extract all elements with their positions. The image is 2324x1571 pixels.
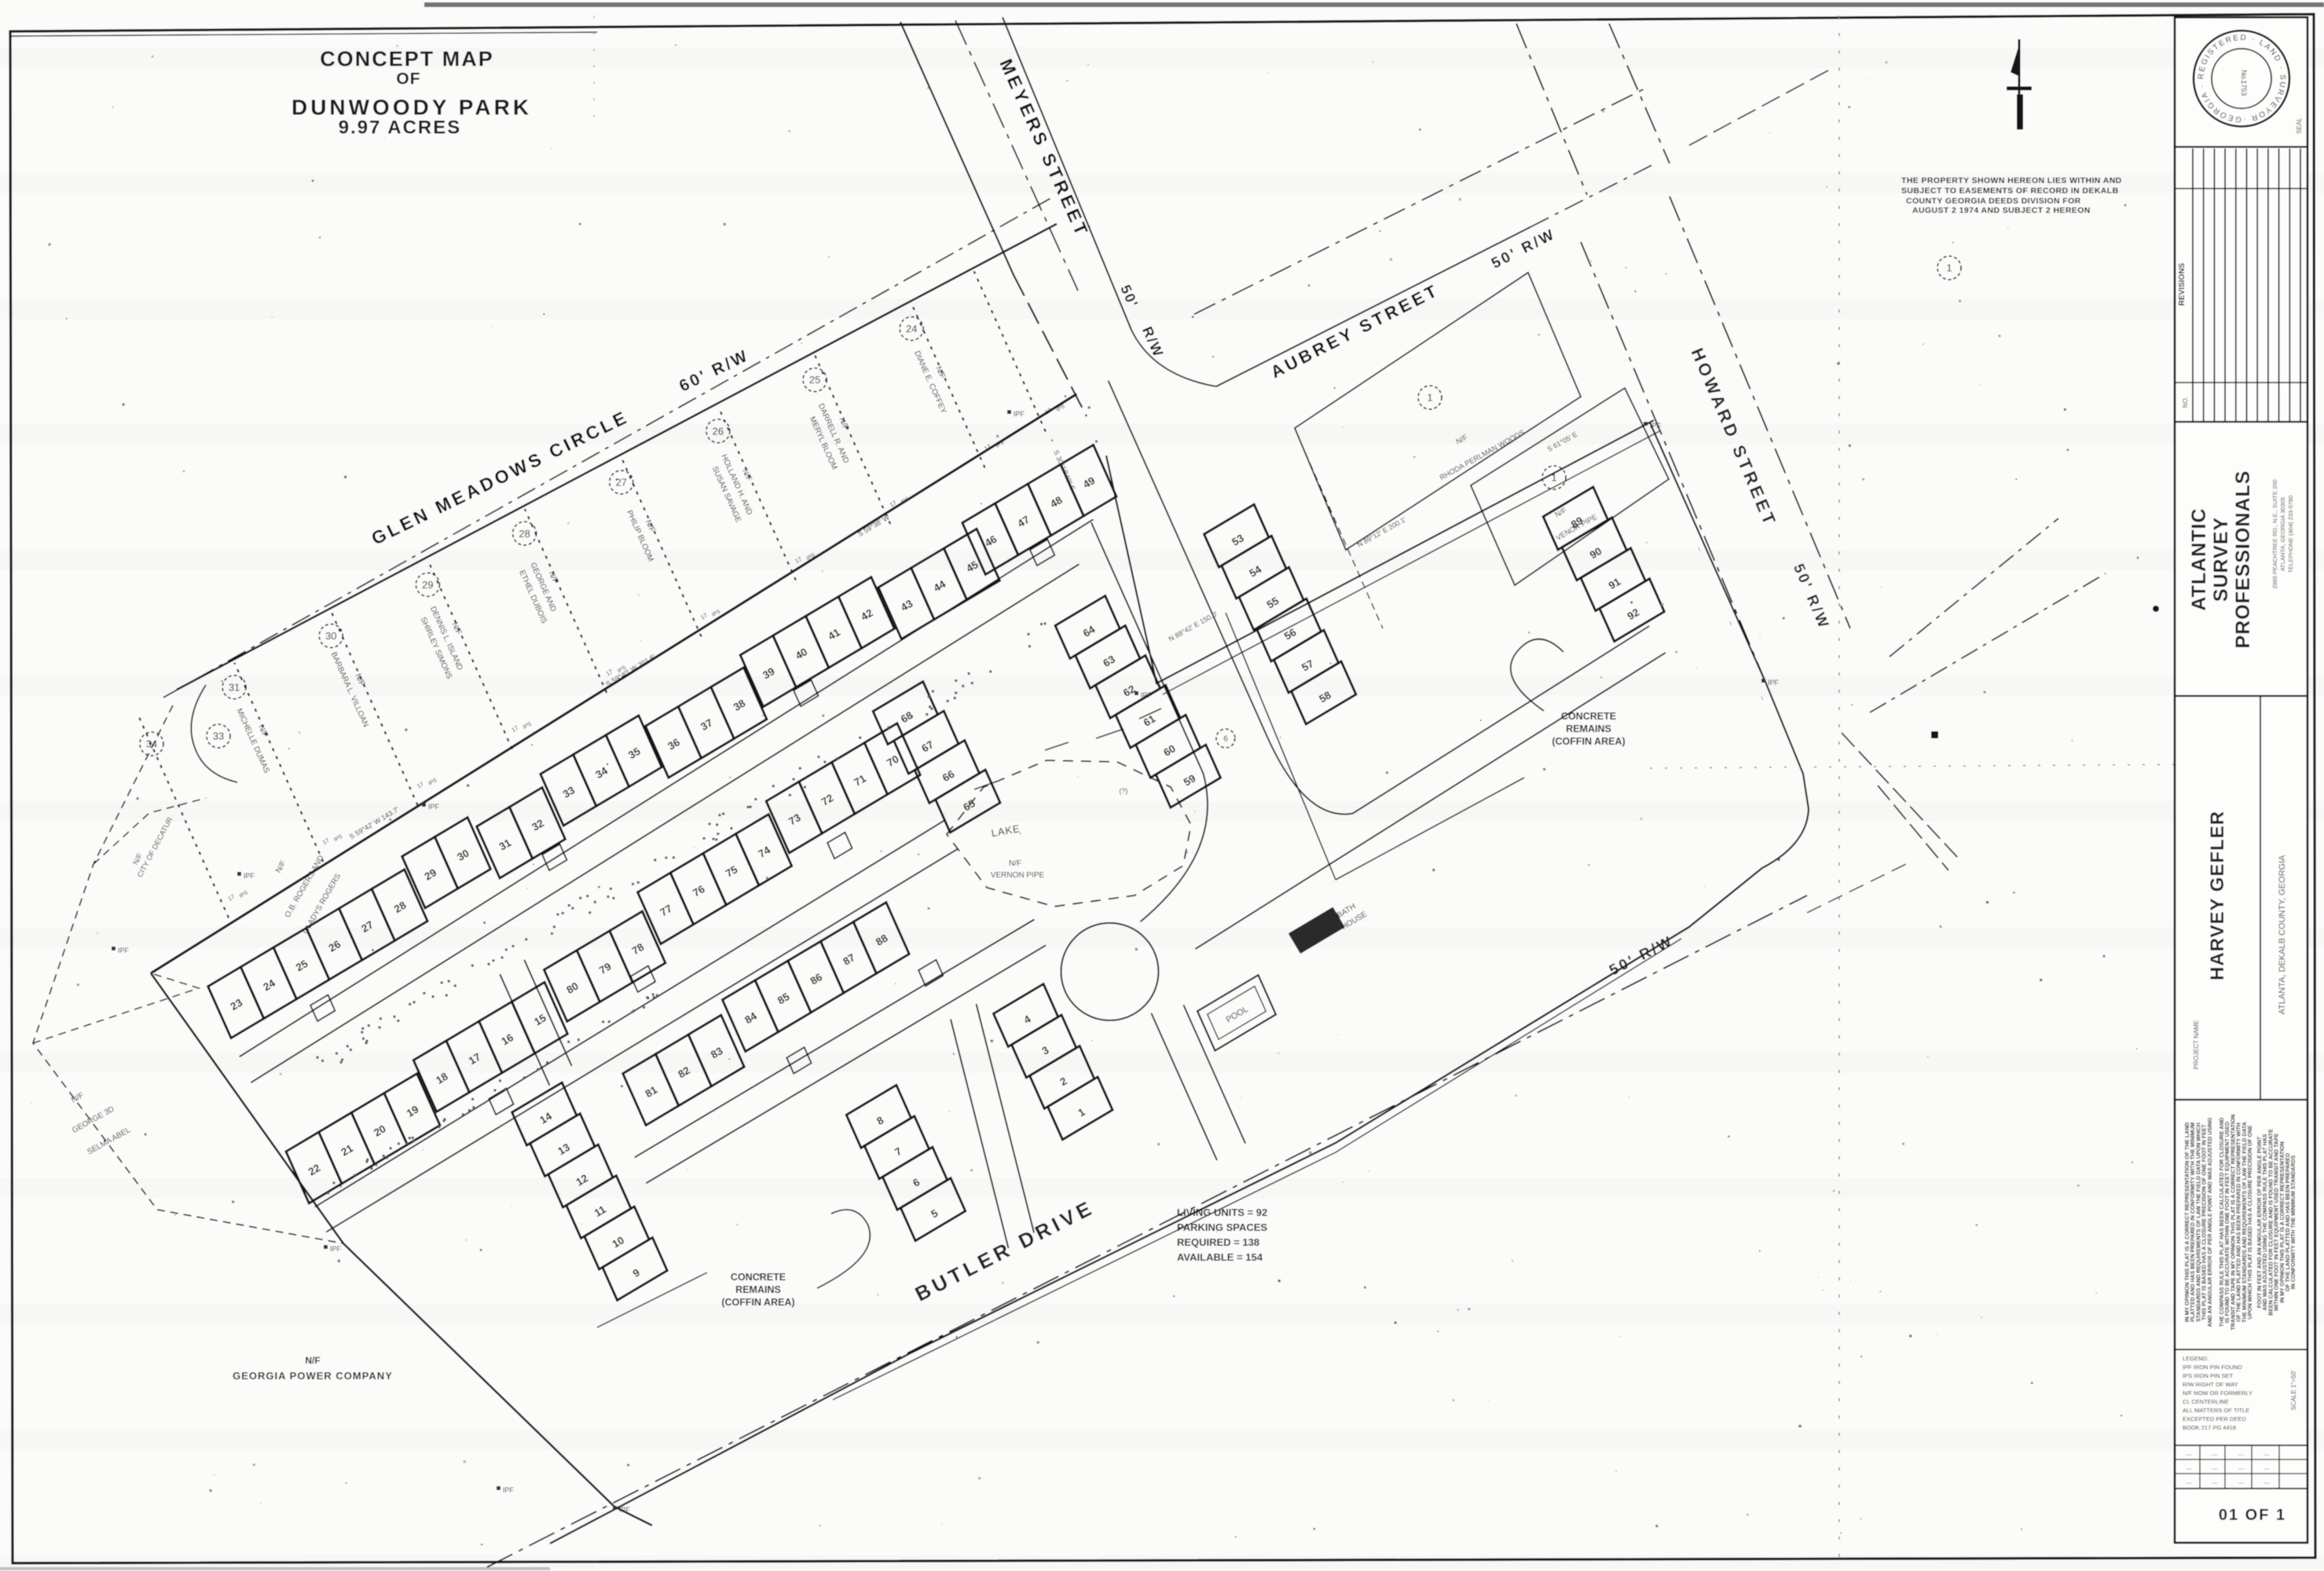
svg-text:1: 1 — [1427, 392, 1432, 404]
svg-text:CL CENTERLINE: CL CENTERLINE — [2183, 1398, 2229, 1405]
svg-text:28: 28 — [519, 528, 530, 540]
svg-text:CONCEPT MAP: CONCEPT MAP — [320, 47, 494, 71]
svg-text:31: 31 — [229, 681, 240, 693]
svg-text:25: 25 — [809, 374, 820, 386]
svg-text:LEGEND:: LEGEND: — [2183, 1355, 2209, 1362]
svg-text:—: — — [2187, 1481, 2192, 1486]
svg-text:SEAL: SEAL — [2296, 117, 2303, 134]
svg-text:9.97 ACRES: 9.97 ACRES — [339, 117, 462, 138]
svg-text:AND AN ANGULAR ERROR OF PER AN: AND AN ANGULAR ERROR OF PER ANGLE POINT … — [2208, 1117, 2213, 1327]
svg-text:IPF: IPF — [503, 1486, 515, 1494]
svg-text:CONCRETE: CONCRETE — [731, 1272, 786, 1283]
svg-text:PROJECT NAME: PROJECT NAME — [2193, 1020, 2200, 1070]
svg-text:OF THE LAND PLATTED AND HAS BE: OF THE LAND PLATTED AND HAS BEEN PREPARE… — [2237, 1122, 2242, 1322]
svg-text:IPF: IPF — [428, 803, 440, 811]
svg-text:ATLANTA, DEKALB COUNTY, GEORGI: ATLANTA, DEKALB COUNTY, GEORGIA — [2278, 855, 2287, 1015]
svg-text:(?): (?) — [1120, 787, 1128, 795]
svg-text:2965 PEACHTREE RD., N.E., SUIT: 2965 PEACHTREE RD., N.E., SUITE 200 — [2271, 479, 2278, 588]
svg-text:GEORGIA POWER COMPANY: GEORGIA POWER COMPANY — [233, 1370, 393, 1382]
svg-text:—: — — [2212, 1467, 2218, 1472]
svg-text:6: 6 — [1223, 735, 1228, 744]
svg-text:SUBJECT TO EASEMENTS OF RECORD: SUBJECT TO EASEMENTS OF RECORD IN DEKALB — [1901, 186, 2119, 196]
svg-text:REMAINS: REMAINS — [1566, 723, 1611, 734]
svg-text:—: — — [2264, 1481, 2270, 1486]
svg-text:SCALE 1"=50': SCALE 1"=50' — [2290, 1370, 2297, 1410]
svg-text:DUNWOODY PARK: DUNWOODY PARK — [291, 95, 532, 119]
svg-text:OF THE LAND PLATTED AND HAS BE: OF THE LAND PLATTED AND HAS BEEN PREPARE… — [2286, 1153, 2291, 1291]
svg-text:WITHIN ONE FOOT IN FEET EQUIPM: WITHIN ONE FOOT IN FEET EQUIPMENT USED T… — [2275, 1133, 2280, 1312]
svg-text:EXCEPTED PER DEED: EXCEPTED PER DEED — [2183, 1415, 2246, 1423]
svg-text:IN MY OPINION THIS PLAT IS A C: IN MY OPINION THIS PLAT IS A CORRECT REP… — [2185, 1122, 2190, 1322]
svg-text:(COFFIN AREA): (COFFIN AREA) — [1552, 736, 1625, 747]
svg-text:THE MINIMUM STANDARDS AND REQU: THE MINIMUM STANDARDS AND REQUIREMENTS O… — [2242, 1122, 2248, 1323]
svg-text:UPON WHICH THIS PLAT IS BASED: UPON WHICH THIS PLAT IS BASED HAS A CLOS… — [2248, 1125, 2253, 1319]
svg-text:30: 30 — [325, 630, 336, 642]
svg-text:BEEN CALCULATED FOR CLOSURE AN: BEEN CALCULATED FOR CLOSURE AND IS FOUND… — [2268, 1129, 2274, 1316]
svg-text:IPF: IPF — [118, 947, 130, 954]
svg-text:R/W RIGHT OF WAY: R/W RIGHT OF WAY — [2183, 1381, 2238, 1388]
svg-text:IN MY OPINION THIS PLAT IS A C: IN MY OPINION THIS PLAT IS A CORRECT REP… — [2280, 1141, 2286, 1302]
svg-text:IPF: IPF — [1650, 422, 1662, 430]
svg-text:THE COMPASS RULE THIS PLAT HAS: THE COMPASS RULE THIS PLAT HAS BEEN CALC… — [2220, 1118, 2225, 1327]
svg-text:24: 24 — [906, 323, 917, 335]
svg-text:THIS PLAT IS BASED HAS A CLOSU: THIS PLAT IS BASED HAS A CLOSURE PRECISI… — [2202, 1124, 2208, 1320]
svg-text:OF: OF — [396, 70, 420, 88]
svg-text:IPF: IPF — [1768, 679, 1780, 687]
svg-text:REVISIONS: REVISIONS — [2178, 262, 2187, 306]
svg-text:ATLANTIC: ATLANTIC — [2188, 507, 2210, 610]
svg-text:—: — — [2264, 1452, 2270, 1458]
svg-text:COUNTY GEORGIA DEEDS DIVISION: COUNTY GEORGIA DEEDS DIVISION FOR — [1906, 196, 2081, 206]
svg-text:IPF: IPF — [330, 1245, 342, 1253]
svg-text:CONCRETE: CONCRETE — [1561, 711, 1616, 722]
svg-text:33: 33 — [213, 731, 224, 742]
svg-text:—: — — [2264, 1467, 2270, 1472]
svg-text:ATLANTA, GEORGIA 30305: ATLANTA, GEORGIA 30305 — [2279, 497, 2286, 571]
svg-text:FOOT IN FEET AND AN ANGULAR ER: FOOT IN FEET AND AN ANGULAR ERROR OF PER… — [2257, 1136, 2263, 1308]
svg-text:LIVING UNITS = 92: LIVING UNITS = 92 — [1177, 1207, 1267, 1218]
svg-text:29: 29 — [422, 579, 433, 591]
svg-text:REQUIRED = 138: REQUIRED = 138 — [1177, 1236, 1259, 1248]
svg-text:34: 34 — [146, 738, 157, 750]
svg-text:IPF: IPF — [1141, 691, 1153, 699]
svg-text:(COFFIN AREA): (COFFIN AREA) — [721, 1297, 794, 1308]
svg-text:N/F: N/F — [305, 1355, 320, 1366]
svg-text:AVAILABLE = 154: AVAILABLE = 154 — [1177, 1251, 1263, 1263]
svg-text:—: — — [2212, 1481, 2218, 1486]
svg-text:BOOK 217 PG 4418: BOOK 217 PG 4418 — [2183, 1424, 2236, 1431]
svg-text:AUGUST 2 1974 AND SUBJECT 2 HE: AUGUST 2 1974 AND SUBJECT 2 HEREON — [1912, 206, 2091, 215]
svg-text:No.: No. — [2240, 70, 2248, 81]
svg-text:STANDARDS AND REQUIREMENTS OF: STANDARDS AND REQUIREMENTS OF LAW THE FI… — [2196, 1122, 2201, 1322]
svg-text:REMAINS: REMAINS — [735, 1284, 781, 1295]
svg-text:PARKING SPACES: PARKING SPACES — [1177, 1221, 1267, 1233]
svg-text:27: 27 — [616, 477, 627, 489]
svg-text:—: — — [2212, 1452, 2218, 1458]
svg-text:IPS IRON PIN SET: IPS IRON PIN SET — [2183, 1372, 2234, 1379]
svg-text:ALL MATTERS OF TITLE: ALL MATTERS OF TITLE — [2183, 1407, 2249, 1414]
svg-text:N/F NOW OR FORMERLY: N/F NOW OR FORMERLY — [2183, 1390, 2253, 1397]
svg-text:VERNON PIPE: VERNON PIPE — [991, 871, 1045, 880]
svg-text:PLATTED AND HAS BEEN PREPARED: PLATTED AND HAS BEEN PREPARED IN CONFORM… — [2190, 1122, 2196, 1322]
svg-text:IPF: IPF — [244, 872, 255, 880]
svg-text:IPF: IPF — [619, 1506, 631, 1514]
svg-text:01 OF 1: 01 OF 1 — [2219, 1507, 2286, 1524]
svg-text:—: — — [2238, 1452, 2244, 1458]
svg-text:1753: 1753 — [2240, 80, 2248, 96]
svg-text:HARVEY GEFLER: HARVEY GEFLER — [2207, 811, 2228, 980]
svg-text:26: 26 — [713, 425, 724, 437]
svg-text:—: — — [2187, 1452, 2192, 1458]
svg-text:—: — — [2238, 1467, 2244, 1472]
svg-text:TRANSIT AND TAPE IN MY OPINION: TRANSIT AND TAPE IN MY OPINION THIS PLAT… — [2231, 1115, 2236, 1331]
svg-text:THE PROPERTY SHOWN HEREON LIES: THE PROPERTY SHOWN HEREON LIES WITHIN AN… — [1901, 176, 2122, 185]
svg-text:NO.: NO. — [2182, 397, 2189, 408]
svg-text:1: 1 — [1946, 262, 1952, 274]
svg-text:AND WAS ADJUSTED USING THE COM: AND WAS ADJUSTED USING THE COMPASS RULE … — [2263, 1133, 2268, 1310]
svg-text:TELEPHONE (404) 233-5780: TELEPHONE (404) 233-5780 — [2287, 496, 2294, 573]
svg-text:1: 1 — [1551, 472, 1556, 484]
svg-text:IN CONFORMITY WITH THE MINIMUM: IN CONFORMITY WITH THE MINIMUM STANDARDS — [2291, 1155, 2297, 1289]
svg-text:PROFESSIONALS: PROFESSIONALS — [2232, 471, 2254, 649]
svg-text:N/F: N/F — [1009, 859, 1021, 868]
svg-text:IPF IRON PIN FOUND: IPF IRON PIN FOUND — [2183, 1364, 2242, 1371]
svg-text:—: — — [2187, 1467, 2192, 1472]
svg-text:SURVEY: SURVEY — [2210, 517, 2232, 602]
svg-text:IPF: IPF — [1014, 410, 1025, 418]
svg-text:IS FOUND TO BE ACCURATE WITHIN: IS FOUND TO BE ACCURATE WITHIN ONE FOOT … — [2225, 1122, 2231, 1323]
svg-text:—: — — [2238, 1481, 2244, 1486]
